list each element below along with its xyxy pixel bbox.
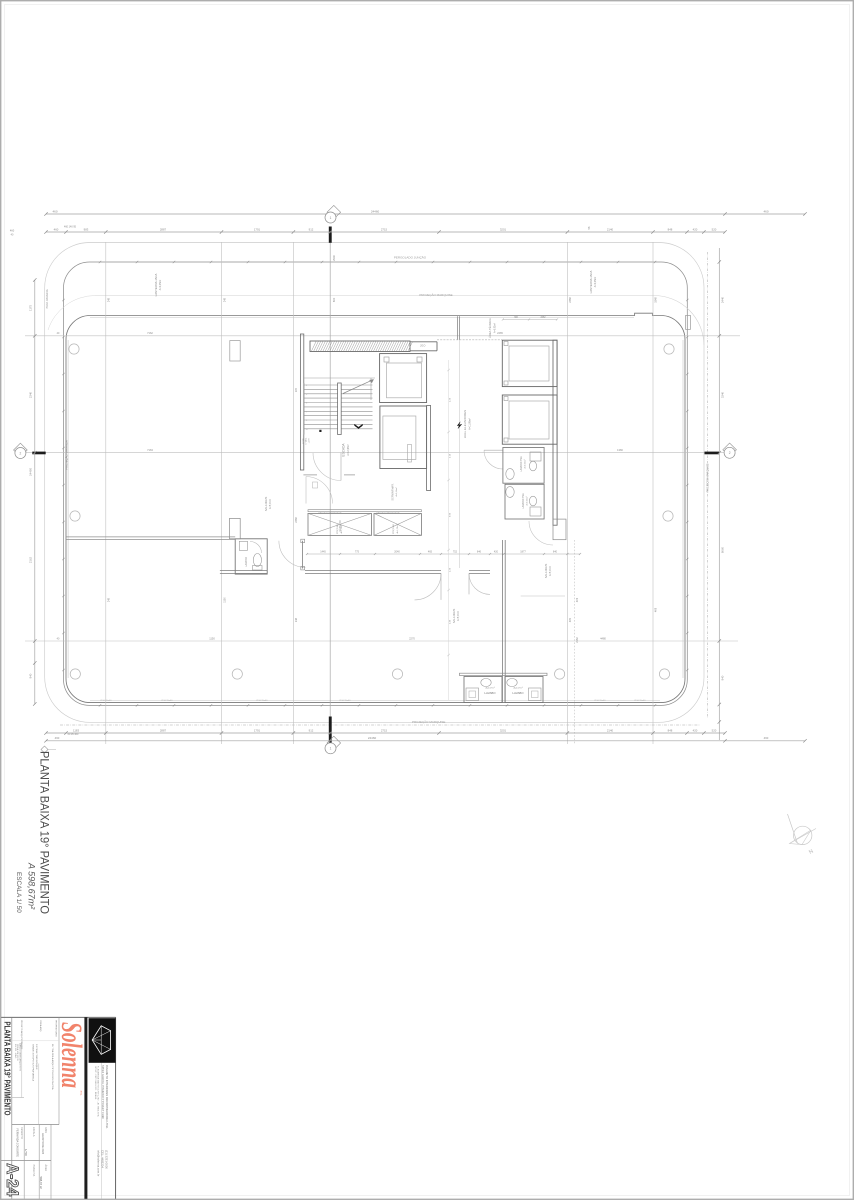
svg-text:1848: 1848 xyxy=(655,297,658,303)
svg-text:2340: 2340 xyxy=(29,391,33,398)
svg-text:2040: 2040 xyxy=(394,550,400,553)
svg-text:SOBE: SOBE xyxy=(303,438,305,444)
svg-text:2082: 2082 xyxy=(540,317,546,319)
svg-text:SP/SP - CEP 01419-002 - BRASIL: SP/SP - CEP 01419-002 - BRASIL xyxy=(94,1066,97,1100)
svg-text:248: 248 xyxy=(108,597,111,602)
svg-text:PROJEÇÃO MARQUISE: PROJEÇÃO MARQUISE xyxy=(412,719,445,724)
svg-text:P.10 15x40: P.10 15x40 xyxy=(635,700,647,702)
svg-text:520: 520 xyxy=(712,728,717,732)
svg-text:848: 848 xyxy=(668,227,673,231)
svg-text:PLANTA BAIXA 19° PAVIMENTO: PLANTA BAIXA 19° PAVIMENTO xyxy=(3,1022,13,1116)
svg-text:ESCALA: ESCALA xyxy=(32,1127,35,1137)
svg-text:+2,79: +2,79 xyxy=(308,439,310,444)
svg-text:2715: 2715 xyxy=(381,728,388,732)
svg-text:PROJEÇÃO VARANDA: PROJEÇÃO VARANDA xyxy=(64,440,69,470)
svg-text:SERV/ARMAR.: SERV/ARMAR. xyxy=(392,483,395,500)
svg-text:A=5,07m²: A=5,07m² xyxy=(457,611,460,621)
svg-text:P.10 15x40: P.10 15x40 xyxy=(257,700,269,702)
svg-text:3: 3 xyxy=(306,394,307,396)
svg-text:LANTERNA JACA: LANTERNA JACA xyxy=(589,271,593,294)
svg-text:SALA WC/S: SALA WC/S xyxy=(452,609,456,624)
svg-text:600: 600 xyxy=(332,297,336,302)
svg-text:24460: 24460 xyxy=(368,736,377,740)
svg-text:2270: 2270 xyxy=(409,636,415,640)
svg-text:983: 983 xyxy=(84,227,89,231)
svg-text:A=3,62m²: A=3,62m² xyxy=(526,496,529,505)
svg-text:2: 2 xyxy=(20,451,22,455)
svg-text:DESENHO: DESENHO xyxy=(20,1127,23,1139)
svg-text:7162: 7162 xyxy=(147,331,153,335)
svg-text:PERGOLADO JUNÇÃO: PERGOLADO JUNÇÃO xyxy=(394,255,427,260)
svg-text:SPFE2 GARCIA, PINHEIRO P POULE: SPFE2 GARCIA, PINHEIRO P POULET CHEF xyxy=(101,1065,105,1120)
svg-text:A=5,07m²: A=5,07m² xyxy=(269,499,272,509)
svg-text:468: 468 xyxy=(655,607,658,612)
svg-text:3201: 3201 xyxy=(500,227,507,231)
svg-text:PLANTA BAIXA 19° PAVIMENTO: PLANTA BAIXA 19° PAVIMENTO xyxy=(37,751,51,914)
svg-text:1183: 1183 xyxy=(73,728,79,732)
svg-text:1791: 1791 xyxy=(254,227,261,231)
svg-text:11: 11 xyxy=(306,429,308,431)
svg-text:LAVABO: LAVABO xyxy=(245,557,248,567)
svg-text:1366: 1366 xyxy=(617,448,623,452)
svg-text:ESCADA: ESCADA xyxy=(342,443,346,457)
svg-text:912: 912 xyxy=(309,728,314,732)
svg-text:A=11,98m²: A=11,98m² xyxy=(468,418,471,430)
svg-text:A 598,67m²: A 598,67m² xyxy=(26,862,36,910)
svg-text:PROPRIETÁRIO: PROPRIETÁRIO xyxy=(55,1020,58,1037)
svg-text:2887: 2887 xyxy=(160,227,167,231)
svg-text:A=12,48m²: A=12,48m² xyxy=(347,444,350,456)
svg-text:SALA WC/S: SALA WC/S xyxy=(264,497,268,512)
svg-text:9: 9 xyxy=(306,420,307,422)
svg-text:A=1,38m²: A=1,38m² xyxy=(396,524,399,533)
svg-text:A=9,82m²: A=9,82m² xyxy=(493,323,496,333)
svg-text:460 140 95: 460 140 95 xyxy=(64,226,77,229)
svg-text:7163: 7163 xyxy=(147,448,153,452)
svg-text:2162: 2162 xyxy=(576,637,579,643)
svg-text:LANTERNA JACA: LANTERNA JACA xyxy=(154,274,158,297)
svg-text:A=5,07m²: A=5,07m² xyxy=(549,566,552,576)
svg-text:2368: 2368 xyxy=(569,297,572,303)
svg-text:1877: 1877 xyxy=(520,550,526,553)
svg-text:460: 460 xyxy=(764,736,769,740)
svg-text:460: 460 xyxy=(10,229,15,233)
svg-text:LAVABO: LAVABO xyxy=(512,691,524,695)
svg-text:24460: 24460 xyxy=(29,468,33,476)
svg-text:1445: 1445 xyxy=(320,550,326,553)
svg-text:A-24: A-24 xyxy=(3,1163,22,1196)
svg-text:8660: 8660 xyxy=(721,546,725,553)
svg-text:5: 5 xyxy=(306,403,307,405)
svg-text:460: 460 xyxy=(54,227,59,231)
svg-text:Solenna: Solenna xyxy=(55,1022,88,1088)
svg-text:PROJEÇÃO MARQUISE: PROJEÇÃO MARQUISE xyxy=(419,292,452,297)
svg-text:409: 409 xyxy=(569,617,572,622)
svg-text:HALL ELEVADORES: HALL ELEVADORES xyxy=(463,410,467,438)
svg-text:7: 7 xyxy=(306,412,307,414)
svg-text:460: 460 xyxy=(52,209,57,213)
svg-text:P.10 15x40: P.10 15x40 xyxy=(595,700,607,702)
svg-text:POÇO B6: POÇO B6 xyxy=(393,523,395,534)
svg-text:60 95 460: 60 95 460 xyxy=(68,733,79,736)
svg-text:ESCALA 1/ 50: ESCALA 1/ 50 xyxy=(15,872,22,913)
svg-text:2440: 2440 xyxy=(721,296,725,303)
svg-text:SALA WC/S: SALA WC/S xyxy=(544,564,548,579)
svg-text:3340: 3340 xyxy=(721,391,725,398)
svg-text:1/ 50: 1/ 50 xyxy=(24,1149,28,1156)
svg-text:848: 848 xyxy=(668,728,673,732)
svg-text:P.10 15x40: P.10 15x40 xyxy=(162,700,174,702)
svg-text:R. ALAMEDA SANTOS 1787 CJ 82 -: R. ALAMEDA SANTOS 1787 CJ 82 - JD. PAULI… xyxy=(97,1066,100,1117)
svg-text:2: 2 xyxy=(729,451,731,455)
svg-text:LAVABO: LAVABO xyxy=(484,691,496,695)
svg-text:R ETIMA 7 PAO BOSQUE: R ETIMA 7 PAO BOSQUE xyxy=(35,1044,38,1070)
svg-text:A=2,44m²: A=2,44m² xyxy=(395,487,398,496)
svg-text:2940: 2940 xyxy=(332,255,336,261)
svg-text:P.10 15x40: P.10 15x40 xyxy=(101,700,113,702)
svg-text:17 DEG.: 17 DEG. xyxy=(306,437,308,445)
svg-text:24460: 24460 xyxy=(371,209,380,213)
svg-text:640: 640 xyxy=(553,550,558,553)
svg-text:752: 752 xyxy=(453,550,458,553)
svg-text:1150: 1150 xyxy=(224,597,227,603)
svg-text:ÁREA: ÁREA xyxy=(44,1165,47,1172)
svg-text:CREA ARQ.: CREA ARQ. xyxy=(39,1020,42,1032)
svg-text:420: 420 xyxy=(693,728,698,732)
svg-text:2140: 2140 xyxy=(607,227,614,231)
svg-text:P.10 15x40: P.10 15x40 xyxy=(340,700,352,702)
svg-text:RETALHO: RETALHO xyxy=(339,520,342,531)
svg-text:LAVABO PNE: LAVABO PNE xyxy=(520,456,523,472)
svg-text:2140: 2140 xyxy=(607,728,614,732)
svg-text:A=2,07m²: A=2,07m² xyxy=(485,686,494,689)
svg-text:GRADE 30 RUPO SUV PRA VARELA: GRADE 30 RUPO SUV PRA VARELA xyxy=(32,1044,35,1081)
svg-text:460: 460 xyxy=(55,736,60,740)
svg-text:arq.: arq. xyxy=(80,1091,84,1096)
svg-text:4480: 4480 xyxy=(600,636,606,640)
svg-text:460: 460 xyxy=(763,209,768,213)
svg-text:ML 301 - 43kG: ML 301 - 43kG xyxy=(14,1044,16,1059)
svg-text:248: 248 xyxy=(108,297,111,302)
svg-text:2887: 2887 xyxy=(160,728,167,732)
svg-text:2715: 2715 xyxy=(381,227,388,231)
svg-text:LAVABO PNE: LAVABO PNE xyxy=(522,493,525,509)
svg-text:info@solenna.com.br: info@solenna.com.br xyxy=(96,1150,100,1177)
svg-text:DIAGNETO INTERIORES INCORPORAD: DIAGNETO INTERIORES INCORPORADORA LTDA. xyxy=(105,1065,109,1129)
svg-text:775: 775 xyxy=(355,550,360,553)
svg-text:AGOSTO DE 2023: AGOSTO DE 2023 xyxy=(41,1133,44,1155)
svg-text:409: 409 xyxy=(576,597,579,602)
svg-text:912: 912 xyxy=(309,227,314,231)
svg-text:646: 646 xyxy=(477,550,482,553)
svg-text:940: 940 xyxy=(721,675,725,680)
svg-text:2162: 2162 xyxy=(29,556,33,563)
svg-text:248: 248 xyxy=(224,297,227,302)
svg-text:A=2,07m²: A=2,07m² xyxy=(513,686,522,689)
svg-text:465: 465 xyxy=(428,550,433,553)
svg-text:3201: 3201 xyxy=(500,728,507,732)
svg-text:1791: 1791 xyxy=(254,728,261,732)
svg-text:1: 1 xyxy=(306,385,307,387)
svg-text:105: 105 xyxy=(295,387,298,392)
svg-text:JGO: JGO xyxy=(420,344,425,348)
svg-text:1150: 1150 xyxy=(209,636,215,640)
svg-text:520: 520 xyxy=(712,227,717,231)
svg-text:2465: 2465 xyxy=(497,331,503,335)
svg-text:1: 1 xyxy=(330,216,332,220)
svg-text:420: 420 xyxy=(693,227,698,231)
svg-text:ML TIVA GRILA ARQUITETOS DSOUZ: ML TIVA GRILA ARQUITETOS DSOUZA LTDA xyxy=(51,1044,54,1090)
svg-text:1: 1 xyxy=(330,747,332,751)
svg-text:248: 248 xyxy=(295,617,298,622)
svg-text:A=3,05m²: A=3,05m² xyxy=(159,280,162,291)
svg-text:1175: 1175 xyxy=(29,305,33,311)
svg-text:PROJ. VARANDA: PROJ. VARANDA xyxy=(46,289,49,308)
svg-text:PRANCHA: PRANCHA xyxy=(32,1165,35,1177)
svg-text:2368: 2368 xyxy=(295,517,298,523)
svg-text:FERNANDA CONSORTE: FERNANDA CONSORTE xyxy=(16,1129,19,1158)
svg-text:A=3,05m²: A=3,05m² xyxy=(594,277,597,288)
svg-text:940: 940 xyxy=(29,673,33,678)
svg-text:598,67 m²: 598,67 m² xyxy=(39,1177,43,1190)
svg-text:420: 420 xyxy=(494,550,499,553)
svg-text:A=3,62m²: A=3,62m² xyxy=(524,459,527,468)
